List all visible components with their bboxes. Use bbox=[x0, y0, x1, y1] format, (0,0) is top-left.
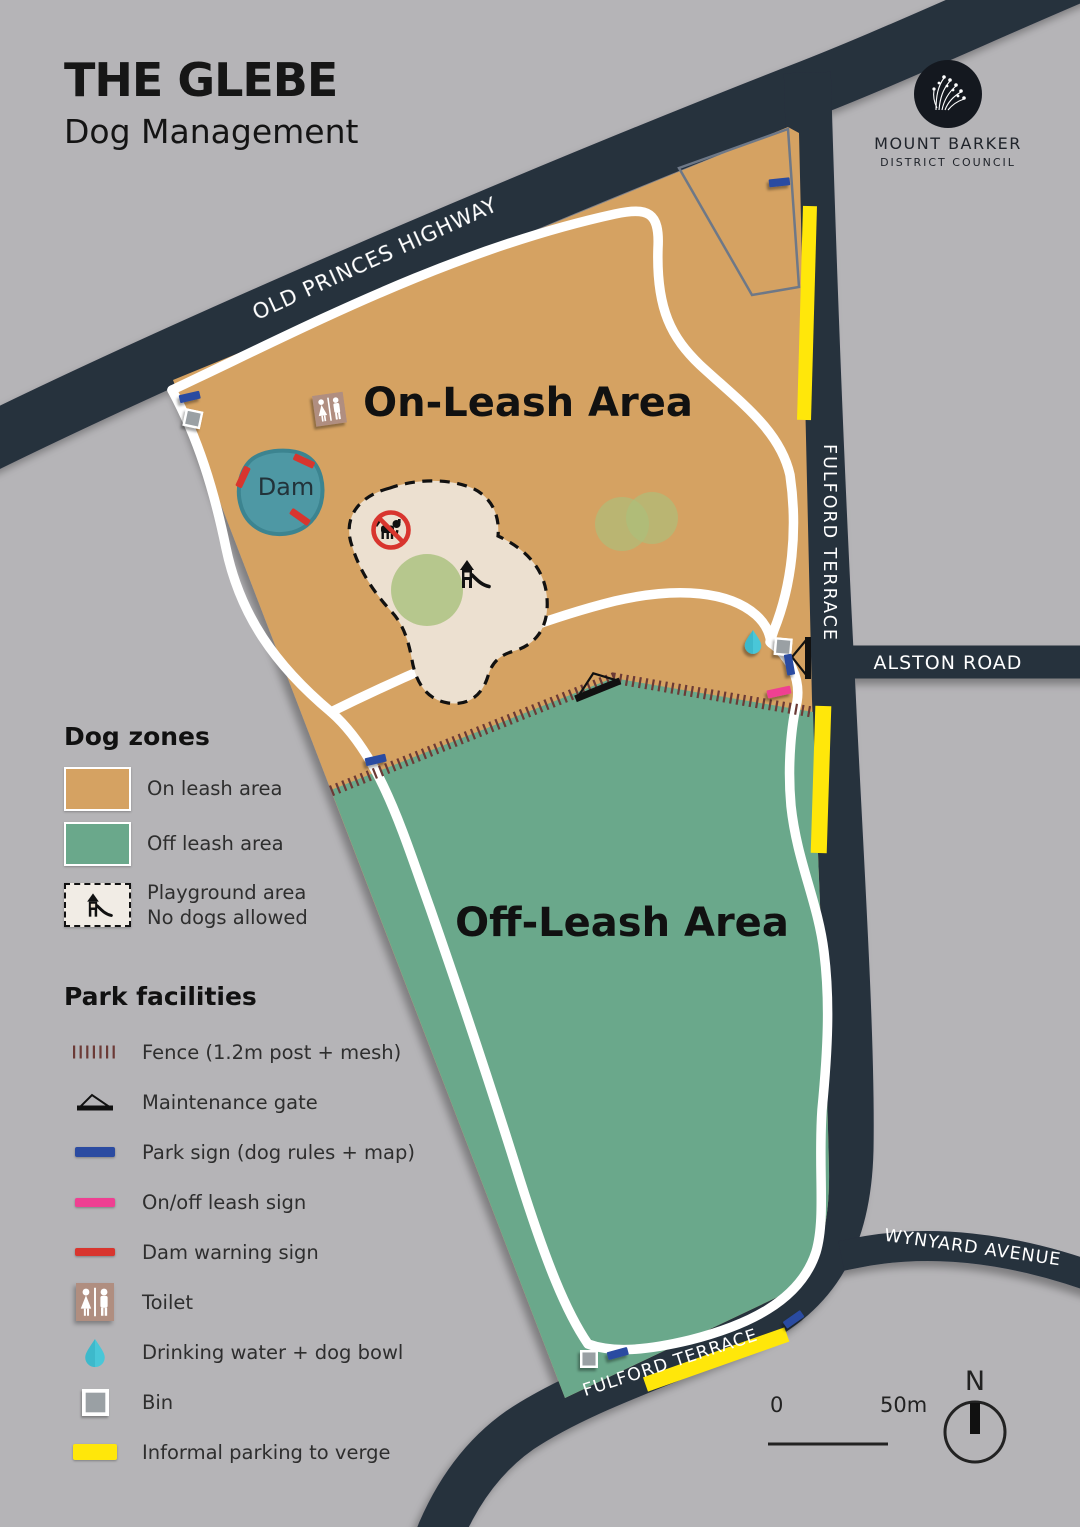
legend-item-toilet: Toilet bbox=[64, 1277, 424, 1327]
page-title: THE GLEBE bbox=[64, 56, 358, 104]
on-leash-label: On-Leash Area bbox=[363, 380, 693, 426]
road-label-alston: ALSTON ROAD bbox=[874, 652, 1023, 674]
water-icon bbox=[64, 1336, 126, 1368]
scale-end: 50m bbox=[880, 1393, 927, 1417]
legend-item-park-sign: Park sign (dog rules + map) bbox=[64, 1127, 424, 1177]
park-sign-icon bbox=[64, 1147, 126, 1157]
legend-label: On leash area bbox=[147, 776, 282, 801]
legend-item-playground: Playground area No dogs allowed bbox=[64, 880, 394, 931]
legend-item-gate: Maintenance gate bbox=[64, 1077, 424, 1127]
dog-zones-legend: Dog zones On leash area Off leash area P… bbox=[64, 722, 394, 942]
off-leash-swatch bbox=[64, 822, 131, 866]
playground-swatch bbox=[64, 883, 131, 927]
toilet-icon bbox=[64, 1283, 126, 1321]
legend-label: Playground area No dogs allowed bbox=[147, 880, 308, 931]
legend-item-off-leash: Off leash area bbox=[64, 822, 394, 866]
bin-icon bbox=[64, 1389, 126, 1416]
legend-item-water: Drinking water + dog bowl bbox=[64, 1327, 424, 1377]
tree bbox=[391, 554, 463, 626]
legend-item-on-leash: On leash area bbox=[64, 767, 394, 811]
road-label-fulford-east: FULFORD TERRACE bbox=[819, 444, 839, 642]
legend-label: Off leash area bbox=[147, 831, 284, 856]
dam-label: Dam bbox=[258, 473, 315, 501]
council-logo-icon bbox=[914, 60, 982, 128]
off-leash-label: Off-Leash Area bbox=[455, 900, 789, 946]
legend-item-bin: Bin bbox=[64, 1377, 424, 1427]
dog-zones-heading: Dog zones bbox=[64, 722, 394, 751]
parking-icon bbox=[64, 1444, 126, 1460]
page-subtitle: Dog Management bbox=[64, 112, 358, 151]
gate-icon bbox=[64, 1091, 126, 1113]
banksia-icon bbox=[922, 68, 974, 120]
park-facilities-heading: Park facilities bbox=[64, 982, 424, 1011]
scale-start: 0 bbox=[770, 1393, 783, 1417]
legend-item-parking: Informal parking to verge bbox=[64, 1427, 424, 1477]
council-name: MOUNT BARKER bbox=[868, 134, 1028, 153]
north-label: N bbox=[965, 1366, 985, 1397]
dam-sign-icon bbox=[64, 1248, 126, 1256]
bin-icon bbox=[581, 1351, 597, 1367]
toilet-icon bbox=[312, 392, 347, 427]
leash-sign-icon bbox=[64, 1198, 126, 1207]
on-leash-swatch bbox=[64, 767, 131, 811]
council-logo: MOUNT BARKER DISTRICT COUNCIL bbox=[868, 60, 1028, 169]
bin-icon bbox=[184, 409, 202, 427]
playground-icon bbox=[83, 891, 113, 919]
fence-icon bbox=[64, 1043, 126, 1061]
legend-item-dam-sign: Dam warning sign bbox=[64, 1227, 424, 1277]
header: THE GLEBE Dog Management bbox=[64, 56, 358, 151]
legend-item-leash-sign: On/off leash sign bbox=[64, 1177, 424, 1227]
park-facilities-legend: Park facilities Fence (1.2m post + mesh)… bbox=[64, 982, 424, 1477]
legend-item-fence: Fence (1.2m post + mesh) bbox=[64, 1027, 424, 1077]
bin-icon bbox=[775, 638, 792, 655]
council-subname: DISTRICT COUNCIL bbox=[868, 156, 1028, 169]
tree bbox=[626, 492, 678, 544]
